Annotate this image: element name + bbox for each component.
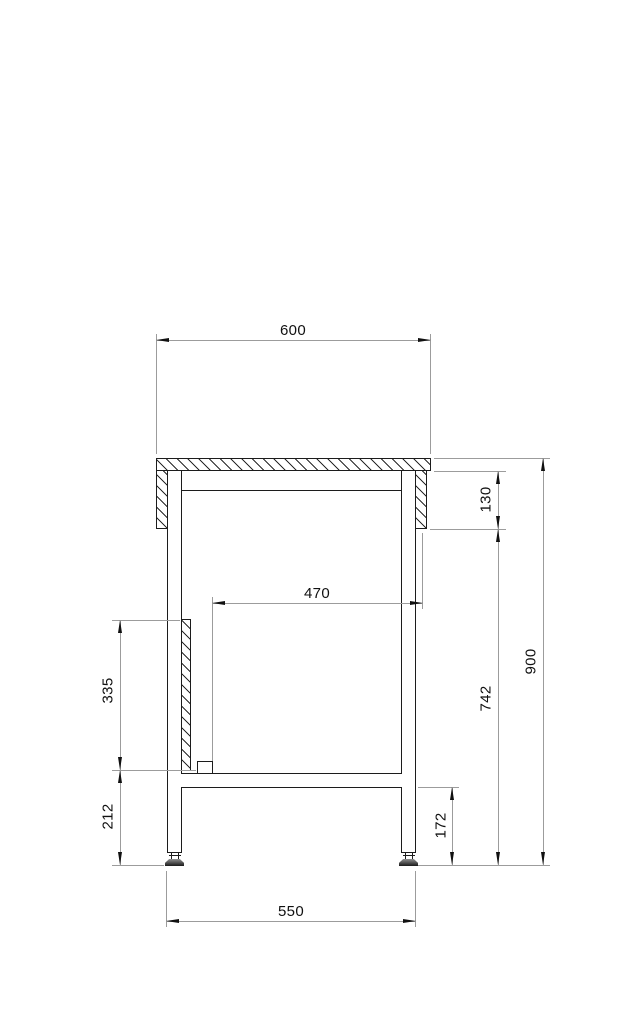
dim-extension-line xyxy=(212,597,213,761)
dim-inner-clearance-label: 470 xyxy=(287,585,347,602)
dim-arrow-icon xyxy=(496,516,500,529)
dim-extension-line xyxy=(112,770,196,771)
dim-line xyxy=(212,603,423,604)
dim-arrow-icon xyxy=(156,338,169,342)
dim-top-width-label: 600 xyxy=(263,322,323,339)
dim-arrow-icon xyxy=(541,458,545,471)
dim-line xyxy=(166,921,416,922)
dim-extension-line xyxy=(422,533,423,609)
dim-leg-span-label: 550 xyxy=(261,903,321,920)
left-leg xyxy=(167,470,182,853)
dim-arrow-icon xyxy=(212,601,225,605)
dim-apron-height-label: 130 xyxy=(478,470,495,530)
left-foot-collar xyxy=(169,855,181,856)
left-foot-pad xyxy=(165,859,184,866)
dim-extension-line xyxy=(156,334,157,454)
drawing-canvas: 600 470 130 742 900 172 xyxy=(0,0,632,1024)
dim-line xyxy=(120,770,121,865)
dim-extension-line xyxy=(430,334,431,454)
dim-arrow-icon xyxy=(496,852,500,865)
dim-panel-to-floor-label: 212 xyxy=(100,787,117,847)
dim-arrow-icon xyxy=(450,787,454,800)
dim-arrow-icon xyxy=(118,757,122,770)
dim-arrow-icon xyxy=(118,770,122,783)
left-foot-stem xyxy=(171,852,179,860)
dim-panel-height-label: 335 xyxy=(100,661,117,721)
dim-arrow-icon xyxy=(541,852,545,865)
tabletop-section xyxy=(156,458,431,471)
dim-line xyxy=(120,620,121,770)
dim-arrow-icon xyxy=(496,529,500,542)
dim-overall-height-label: 900 xyxy=(523,632,540,692)
dim-arrow-icon xyxy=(118,852,122,865)
right-leg xyxy=(401,470,416,853)
apron-rail-edge xyxy=(181,490,402,491)
dim-under-top-height-label: 742 xyxy=(478,669,495,729)
side-panel-section xyxy=(181,619,191,771)
right-foot-pad xyxy=(399,859,418,866)
dim-shelf-height-label: 172 xyxy=(433,796,450,856)
apron-right-section xyxy=(415,470,427,529)
dim-arrow-icon xyxy=(418,338,431,342)
dim-extension-line xyxy=(112,620,180,621)
right-foot-collar xyxy=(403,855,415,856)
dim-line xyxy=(543,458,544,865)
dim-arrow-icon xyxy=(496,471,500,484)
dim-arrow-icon xyxy=(403,919,416,923)
dim-extension-line xyxy=(434,458,550,459)
dim-arrow-icon xyxy=(450,852,454,865)
floor-extension-line xyxy=(112,865,164,866)
right-foot-stem xyxy=(405,852,413,860)
dim-arrow-icon xyxy=(166,919,179,923)
dim-arrow-icon xyxy=(410,601,423,605)
floor-extension-line xyxy=(418,865,550,866)
dim-arrow-icon xyxy=(118,620,122,633)
dim-extension-line xyxy=(430,529,506,530)
dim-line xyxy=(156,340,431,341)
dim-line xyxy=(498,529,499,865)
lower-shelf xyxy=(181,773,402,788)
